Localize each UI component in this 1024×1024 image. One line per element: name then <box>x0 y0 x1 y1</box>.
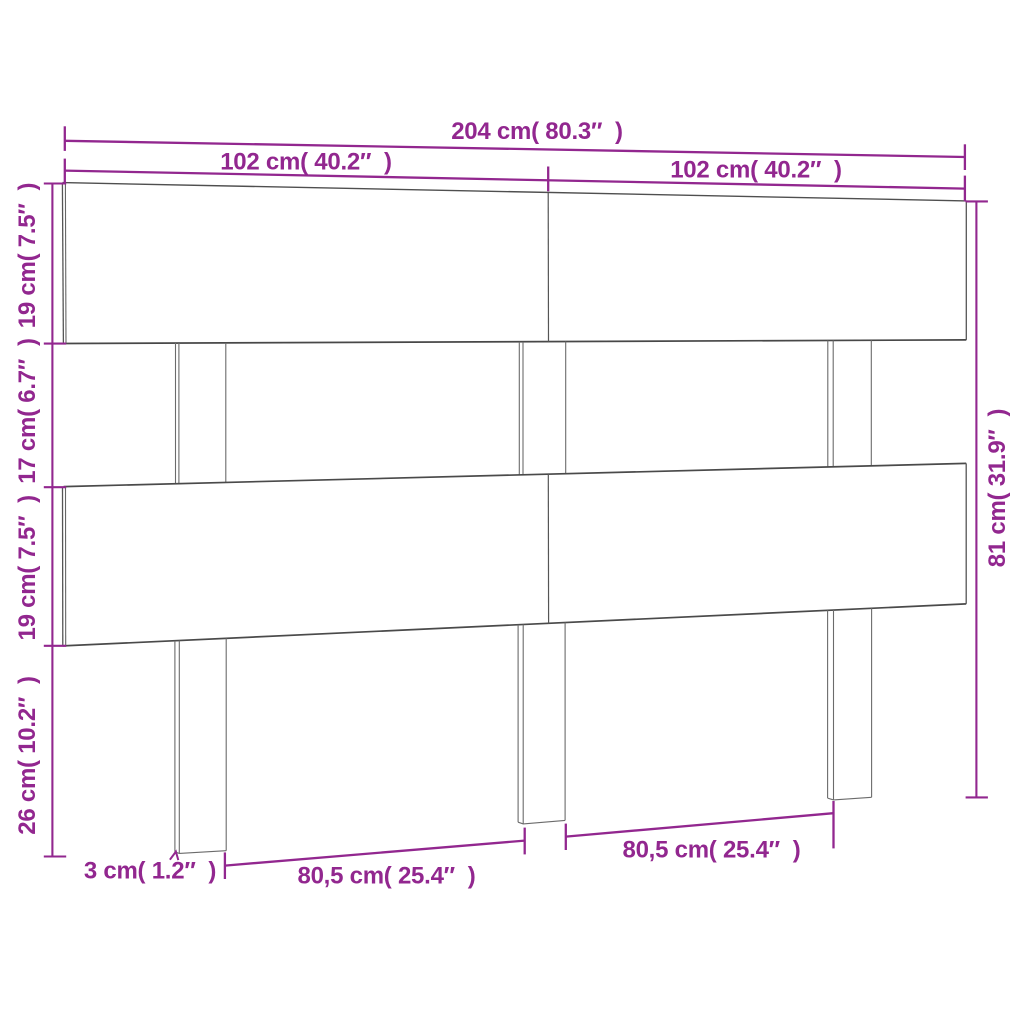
svg-text:80,5 cm( 25.4″ ): 80,5 cm( 25.4″ ) <box>297 863 475 890</box>
svg-text:3 cm( 1.2″ ): 3 cm( 1.2″ ) <box>84 858 216 885</box>
svg-text:19 cm( 7.5″ ): 19 cm( 7.5″ ) <box>14 495 41 640</box>
svg-text:80,5 cm( 25.4″ ): 80,5 cm( 25.4″ ) <box>622 837 800 864</box>
svg-text:26 cm( 10.2″ ): 26 cm( 10.2″ ) <box>14 676 41 835</box>
svg-text:102 cm( 40.2″ ): 102 cm( 40.2″ ) <box>220 149 392 176</box>
svg-text:17 cm( 6.7″ ): 17 cm( 6.7″ ) <box>14 338 41 483</box>
svg-text:81 cm( 31.9″ ): 81 cm( 31.9″ ) <box>984 409 1011 568</box>
svg-text:19 cm( 7.5″ ): 19 cm( 7.5″ ) <box>14 183 41 328</box>
svg-text:204 cm( 80.3″ ): 204 cm( 80.3″ ) <box>451 118 623 145</box>
svg-text:102 cm( 40.2″ ): 102 cm( 40.2″ ) <box>670 157 842 184</box>
